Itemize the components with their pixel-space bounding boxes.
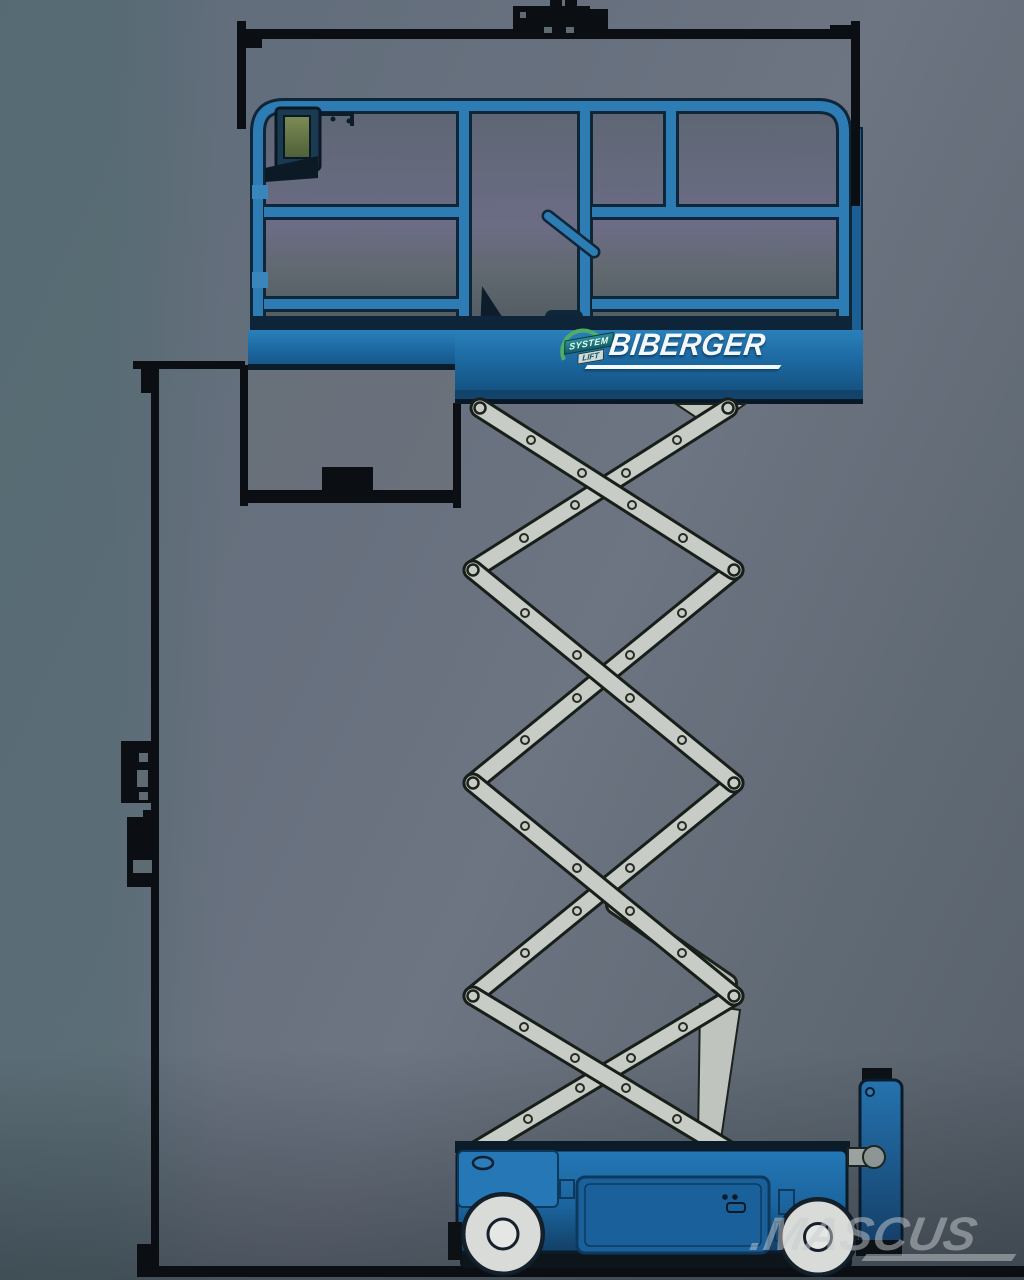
dimension-label-blob-top (513, 0, 608, 35)
scissor-arms-over (473, 408, 734, 1150)
front-bracket (448, 1222, 462, 1260)
scissor-lift-diagram: SYSTEM LIFT BIBERGER .MASCUS (0, 0, 1024, 1280)
control-box-screen (284, 116, 310, 158)
scissor-arms-under (473, 408, 734, 1150)
rivet-dots (520, 436, 687, 1123)
logo-text: BIBERGER (607, 327, 768, 363)
dimension-label-blob-lower (127, 810, 156, 887)
front-hole (473, 1157, 493, 1169)
scissor-mechanism (468, 403, 746, 1156)
rail-joint (252, 272, 268, 288)
logo-underline (585, 365, 782, 369)
watermark-text: .MASCUS (746, 1206, 981, 1261)
battery-door-panel (577, 1177, 769, 1253)
rail-joint (252, 185, 268, 199)
biberger-logo: SYSTEM LIFT BIBERGER (562, 326, 792, 378)
mascus-watermark: .MASCUS (756, 1206, 1024, 1272)
dimension-label-blob-upper (121, 741, 153, 803)
stowed-outline-box (240, 365, 461, 508)
left-dimension-line (121, 361, 245, 1270)
diagram-canvas (0, 0, 1024, 1280)
wheel-left (464, 1195, 542, 1273)
